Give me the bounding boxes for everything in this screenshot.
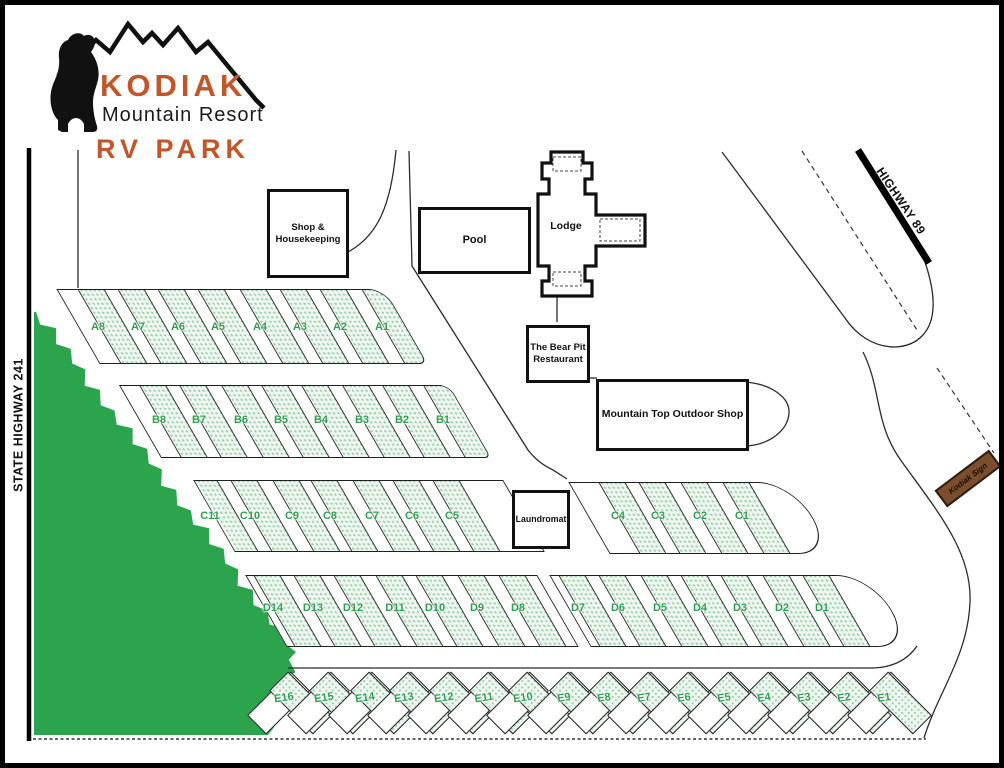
rv-spot-label-C1: C1 <box>735 510 749 522</box>
rv-spot-label-D8: D8 <box>511 602 525 614</box>
rv-spot-label-A1: A1 <box>375 321 389 333</box>
rv-spot-label-E4: E4 <box>756 691 771 705</box>
rv-spot-label-D6: D6 <box>611 602 625 614</box>
rv-spot-label-D11: D11 <box>385 602 405 614</box>
rv-park-map: KODIAK Mountain Resort RV PARK STATE HIG… <box>0 0 1004 768</box>
rv-spot-label-C7: C7 <box>365 510 379 522</box>
rv-spot-label-D2: D2 <box>775 602 789 614</box>
rv-spot-label-C2: C2 <box>693 510 707 522</box>
rv-spot-label-D12: D12 <box>343 602 363 614</box>
rv-spot-label-E3: E3 <box>796 691 811 705</box>
rv-spot-label-E2: E2 <box>836 691 851 705</box>
rv-spot-label-D4: D4 <box>693 602 707 614</box>
building-pool: Pool <box>418 207 531 274</box>
state-highway-241-label: STATE HIGHWAY 241 <box>12 343 26 508</box>
rv-spot-label-B5: B5 <box>274 414 288 426</box>
rv-spot-band-D-east <box>549 575 913 647</box>
rv-spot-label-E5: E5 <box>716 691 731 705</box>
rv-spot-label-B3: B3 <box>355 414 369 426</box>
rv-spot-label-C10: C10 <box>240 510 260 522</box>
rv-spot-label-D10: D10 <box>425 602 445 614</box>
logo-title: KODIAK <box>100 68 246 104</box>
building-laundromat: Laundromat <box>512 490 570 549</box>
rv-spot-label-C6: C6 <box>405 510 419 522</box>
rv-spot-label-C9: C9 <box>285 510 299 522</box>
rv-spot-label-C4: C4 <box>611 510 625 522</box>
rv-spot-label-E1: E1 <box>876 691 891 705</box>
rv-spot-label-E6: E6 <box>676 691 691 705</box>
rv-spot-band-A <box>56 289 427 364</box>
building-shop-housekeeping: Shop & Housekeeping <box>267 189 349 278</box>
rv-spot-label-D7: D7 <box>571 602 585 614</box>
rv-spot-label-E9: E9 <box>556 691 571 705</box>
rv-spot-band-D-west <box>245 575 579 647</box>
rv-spot-label-C5: C5 <box>445 510 459 522</box>
rv-spot-label-D13: D13 <box>303 602 323 614</box>
rv-spot-label-B2: B2 <box>395 414 409 426</box>
rv-spot-label-E8: E8 <box>596 691 611 705</box>
rv-spot-label-C3: C3 <box>651 510 665 522</box>
rv-spot-label-A3: A3 <box>293 321 307 333</box>
rv-spot-label-A8: A8 <box>91 321 105 333</box>
rv-spot-label-C11: C11 <box>200 510 220 522</box>
rv-spot-label-B7: B7 <box>192 414 206 426</box>
rv-spot-label-A6: A6 <box>171 321 185 333</box>
rv-spot-label-B8: B8 <box>152 414 166 426</box>
rv-spot-label-A7: A7 <box>131 321 145 333</box>
rv-spot-label-D9: D9 <box>470 602 484 614</box>
building-bear-pit-restaurant: The Bear Pit Restaurant <box>526 325 590 383</box>
rv-spot-label-A2: A2 <box>333 321 347 333</box>
rv-spot-label-A5: A5 <box>211 321 225 333</box>
rv-spot-label-D1: D1 <box>815 602 829 614</box>
building-lodge-label: Lodge <box>536 220 596 232</box>
rv-spot-label-B6: B6 <box>234 414 248 426</box>
rv-spot-label-E7: E7 <box>636 691 651 705</box>
rv-spot-label-D3: D3 <box>733 602 747 614</box>
logo-park-title: RV PARK <box>96 134 250 165</box>
rv-spot-label-B1: B1 <box>436 414 450 426</box>
rv-spot-label-D5: D5 <box>653 602 667 614</box>
bear-icon <box>51 33 99 132</box>
logo-subtitle: Mountain Resort <box>102 104 264 127</box>
building-mountain-top-outdoor-shop: Mountain Top Outdoor Shop <box>596 379 749 451</box>
rv-spot-label-C8: C8 <box>323 510 337 522</box>
rv-spot-label-B4: B4 <box>314 414 328 426</box>
rv-spot-label-A4: A4 <box>253 321 267 333</box>
rv-spot-label-D14: D14 <box>263 602 283 614</box>
